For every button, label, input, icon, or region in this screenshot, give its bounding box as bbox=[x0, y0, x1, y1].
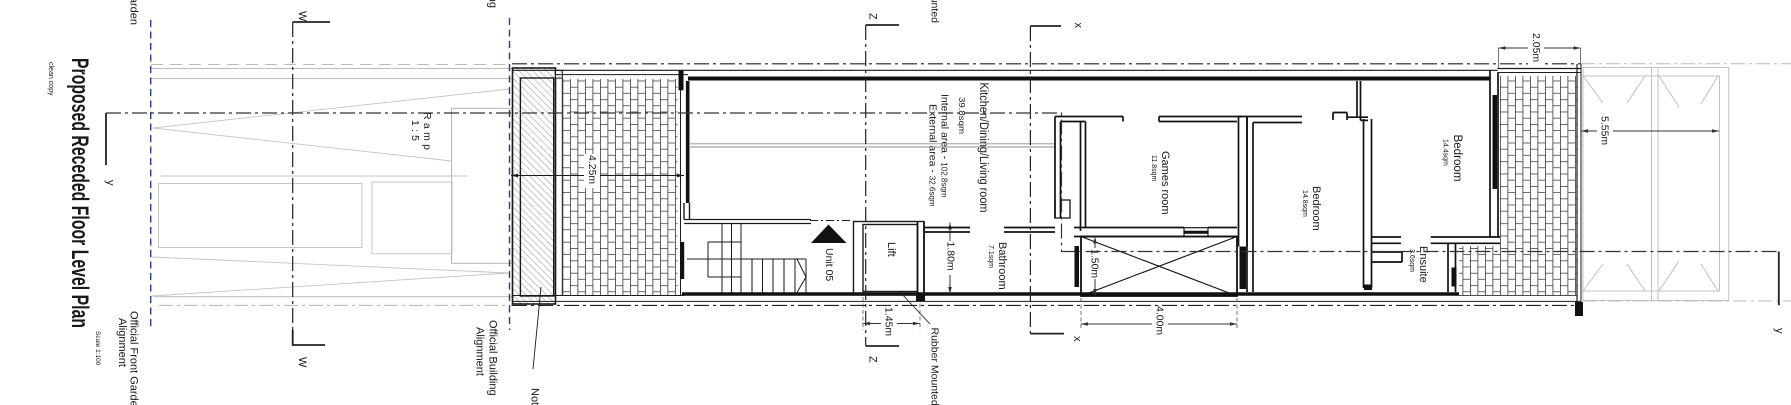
svg-text:5.55m: 5.55m bbox=[1599, 116, 1611, 145]
svg-text:2.05m: 2.05m bbox=[1530, 33, 1542, 62]
svg-text:Alignment: Alignment bbox=[116, 318, 128, 367]
svg-text:39.8sqm: 39.8sqm bbox=[957, 97, 966, 134]
svg-text:3.6sqm: 3.6sqm bbox=[1408, 249, 1415, 272]
svg-text:1.50m: 1.50m bbox=[1089, 249, 1101, 278]
svg-text:W: W bbox=[296, 11, 308, 22]
svg-text:W: W bbox=[296, 357, 308, 368]
svg-text:1.80m: 1.80m bbox=[945, 242, 957, 271]
svg-text:Official Building: Official Building bbox=[487, 320, 499, 396]
svg-text:Lift: Lift bbox=[885, 242, 897, 257]
svg-text:Proposed Receded Floor Level P: Proposed Receded Floor Level Plan bbox=[66, 58, 93, 328]
svg-text:External area - 32.6sqm: External area - 32.6sqm bbox=[927, 104, 939, 207]
svg-text:y: y bbox=[1773, 328, 1785, 334]
svg-text:Rubber Mounted AC: Rubber Mounted AC bbox=[929, 328, 941, 405]
svg-text:1.45m: 1.45m bbox=[883, 307, 895, 336]
svg-text:4.00m: 4.00m bbox=[1154, 306, 1166, 335]
svg-text:Kitchen/Dining/Living room: Kitchen/Dining/Living room bbox=[977, 83, 989, 213]
svg-text:Games room: Games room bbox=[1159, 151, 1171, 215]
svg-text:Z: Z bbox=[867, 356, 879, 363]
svg-text:Bedroom: Bedroom bbox=[1451, 135, 1463, 182]
svg-text:Internal area - 102.8sqm: Internal area - 102.8sqm bbox=[939, 94, 951, 198]
svg-text:Scale 1:100: Scale 1:100 bbox=[94, 331, 101, 366]
svg-text:y: y bbox=[104, 180, 116, 186]
svg-text:Rubber Mounted: Rubber Mounted bbox=[929, 0, 941, 23]
svg-text:clean copy: clean copy bbox=[47, 62, 54, 96]
svg-text:Z: Z bbox=[867, 13, 879, 20]
svg-text:Alignment: Alignment bbox=[474, 327, 486, 376]
svg-text:Official Building: Official Building bbox=[487, 0, 499, 8]
svg-text:1:5: 1:5 bbox=[409, 120, 421, 141]
svg-text:x: x bbox=[1072, 23, 1084, 29]
svg-text:14.4sqm: 14.4sqm bbox=[1442, 139, 1449, 166]
svg-text:11.8sqm: 11.8sqm bbox=[1150, 155, 1157, 181]
svg-text:Bathroom: Bathroom bbox=[996, 242, 1008, 290]
svg-text:4.25m: 4.25m bbox=[586, 155, 598, 184]
svg-text:Unit 05: Unit 05 bbox=[823, 248, 835, 281]
svg-text:7.1sqm: 7.1sqm bbox=[987, 245, 994, 268]
svg-text:14.8sqm: 14.8sqm bbox=[1301, 190, 1308, 217]
svg-text:Official Front Garden: Official Front Garden bbox=[128, 0, 140, 25]
svg-text:Notional: Notional bbox=[529, 388, 541, 405]
svg-text:Bedroom: Bedroom bbox=[1310, 186, 1322, 231]
svg-text:Official Front Garden: Official Front Garden bbox=[128, 311, 140, 405]
svg-text:x: x bbox=[1071, 336, 1083, 342]
